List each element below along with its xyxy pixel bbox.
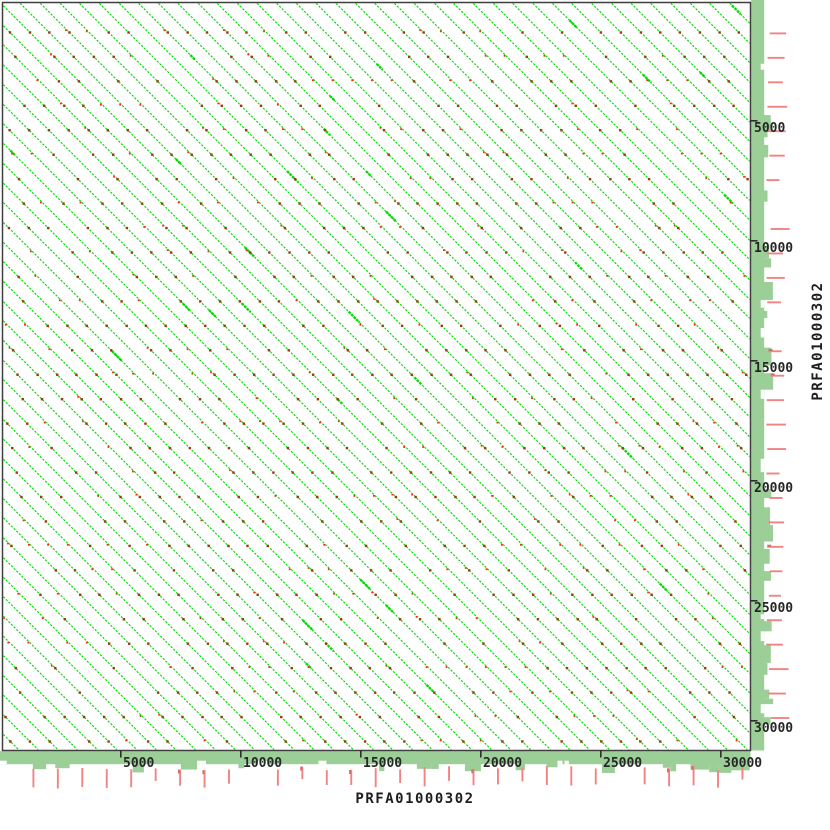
y-axis-tick-label: 15000 [754,362,793,375]
x-axis-tick-label: 25000 [603,757,642,770]
x-axis-tick-label: 20000 [483,757,522,770]
x-axis-tick-label: 10000 [243,757,282,770]
y-axis-tick-label: 10000 [754,242,793,255]
x-axis-title: PRFA01000302 [355,791,474,807]
x-axis-tick-label: 5000 [123,757,154,770]
y-axis-tick-label: 20000 [754,482,793,495]
y-axis-tick-label: 25000 [754,602,793,615]
y-axis-tick-label: 30000 [754,722,793,735]
major-ticks [120,120,758,758]
y-axis-tick-label: 5000 [754,122,785,135]
x-axis-tick-label: 30000 [723,757,762,770]
coverage-bands [0,0,773,773]
minor-ticks [32,32,789,788]
x-axis-tick-label: 15000 [363,757,402,770]
plot-border [3,3,751,751]
alignment-diagonals [3,3,750,749]
y-axis-title: PRFA01000302 [810,281,826,400]
dotplot-canvas[interactable] [0,0,830,830]
